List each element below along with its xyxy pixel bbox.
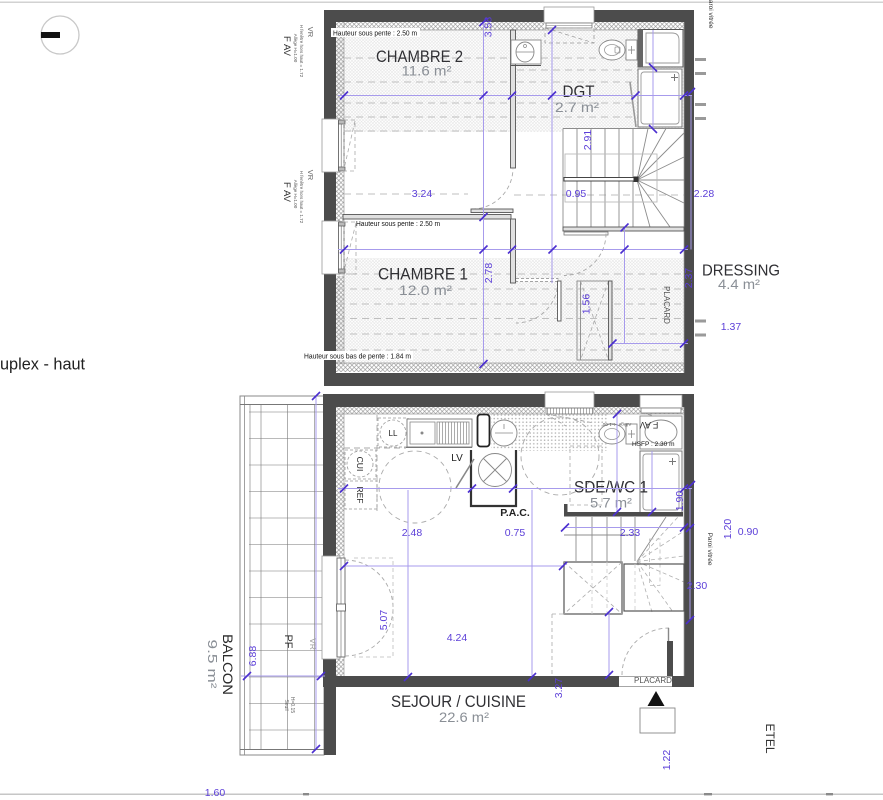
svg-text:2.37: 2.37: [683, 268, 695, 289]
svg-text:Allège H=1.00: Allège H=1.00: [293, 34, 298, 63]
svg-text:ETEL: ETEL: [763, 723, 777, 753]
svg-text:Hauteur sous pente : 2.50 m: Hauteur sous pente : 2.50 m: [333, 31, 417, 38]
svg-text:22.6 m²: 22.6 m²: [439, 709, 489, 725]
svg-text:12.0 m²: 12.0 m²: [399, 282, 452, 298]
svg-text:3.24: 3.24: [412, 188, 433, 200]
svg-text:2.78: 2.78: [483, 263, 495, 284]
svg-text:F AV: F AV: [281, 182, 292, 203]
svg-text:9.5 m²: 9.5 m²: [205, 640, 220, 690]
svg-text:11.6 m²: 11.6 m²: [402, 63, 452, 79]
svg-text:HSFP : 2.30 m: HSFP : 2.30 m: [632, 441, 675, 448]
svg-text:VR: VR: [306, 170, 315, 181]
svg-text:LL: LL: [389, 429, 398, 438]
svg-text:0.95: 0.95: [566, 188, 587, 200]
svg-text:1.60: 1.60: [205, 787, 226, 799]
svg-text:H fenêtre hors haut = 1.72: H fenêtre hors haut = 1.72: [299, 171, 304, 224]
svg-text:F AV: F AV: [640, 420, 659, 430]
svg-text:Allège H=1.00: Allège H=1.00: [293, 180, 298, 209]
svg-text:6.88: 6.88: [247, 646, 259, 667]
svg-text:5.7 m²: 5.7 m²: [590, 496, 633, 511]
svg-text:PF: PF: [282, 634, 294, 648]
svg-text:1.90: 1.90: [674, 491, 686, 512]
svg-text:F AV: F AV: [281, 36, 292, 57]
svg-text:LV: LV: [451, 453, 463, 464]
svg-text:H fenêtre hors haut = 1.72: H fenêtre hors haut = 1.72: [299, 25, 304, 78]
svg-text:1.37: 1.37: [721, 321, 742, 333]
svg-text:uplex - haut: uplex - haut: [0, 356, 86, 374]
svg-text:2.48: 2.48: [402, 527, 423, 539]
svg-text:1.20: 1.20: [722, 519, 734, 540]
svg-text:2.33: 2.33: [620, 527, 641, 539]
svg-text:2.28: 2.28: [694, 188, 715, 200]
svg-text:PLACARD: PLACARD: [662, 286, 671, 324]
svg-text:4.4 m²: 4.4 m²: [718, 277, 761, 292]
svg-text:3.27: 3.27: [553, 678, 565, 699]
svg-text:1.56: 1.56: [581, 294, 593, 315]
svg-text:2.91: 2.91: [582, 130, 594, 151]
svg-text:Seuil: Seuil: [283, 699, 289, 710]
svg-text:SDE/WC 1: SDE/WC 1: [574, 479, 648, 497]
svg-text:0.75: 0.75: [505, 527, 526, 539]
svg-text:Paroi vitrée: Paroi vitrée: [707, 0, 714, 29]
svg-text:2.30: 2.30: [687, 580, 708, 592]
svg-text:0.90: 0.90: [738, 526, 759, 538]
svg-text:CHAMBRE 1: CHAMBRE 1: [378, 265, 468, 284]
svg-text:Paroi vitrée: Paroi vitrée: [706, 533, 713, 566]
svg-text:2.7 m²: 2.7 m²: [555, 99, 599, 115]
svg-text:3.58: 3.58: [483, 17, 495, 38]
svg-text:H=0.15: H=0.15: [289, 697, 295, 713]
svg-text:4.24: 4.24: [447, 632, 468, 644]
svg-text:Hauteur sous bas de pente : 1.: Hauteur sous bas de pente : 1.84 m: [304, 354, 411, 361]
svg-text:CUI: CUI: [355, 457, 365, 472]
svg-text:P.A.C.: P.A.C.: [500, 507, 530, 519]
svg-text:1.22: 1.22: [661, 750, 673, 771]
svg-text:PLACARD: PLACARD: [634, 676, 672, 685]
svg-text:REF: REF: [355, 487, 365, 504]
svg-text:5.07: 5.07: [378, 610, 390, 631]
svg-text:VR: VR: [306, 27, 315, 38]
svg-text:BALCON: BALCON: [220, 634, 236, 695]
svg-text:Hauteur sous pente : 2.50 m: Hauteur sous pente : 2.50 m: [356, 221, 440, 228]
